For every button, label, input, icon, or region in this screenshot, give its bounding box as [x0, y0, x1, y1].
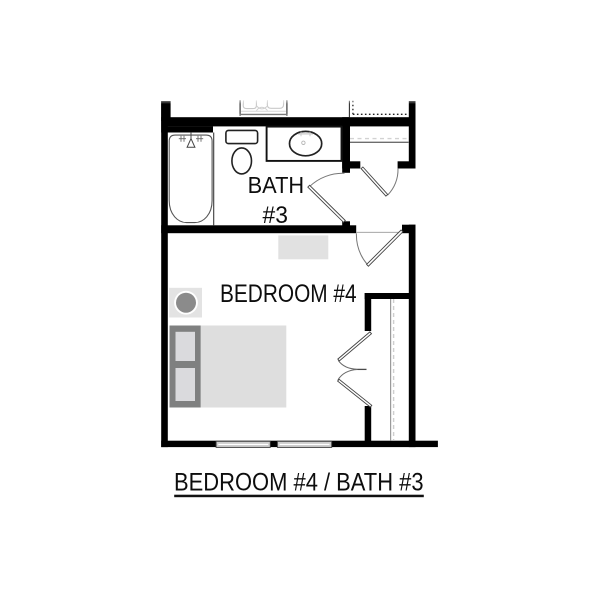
svg-text:BEDROOM #4: BEDROOM #4 [220, 281, 357, 308]
svg-text:BATH: BATH [248, 172, 305, 198]
svg-text:BEDROOM #4 / BATH #3: BEDROOM #4 / BATH #3 [174, 470, 424, 497]
svg-text:#3: #3 [263, 202, 288, 229]
